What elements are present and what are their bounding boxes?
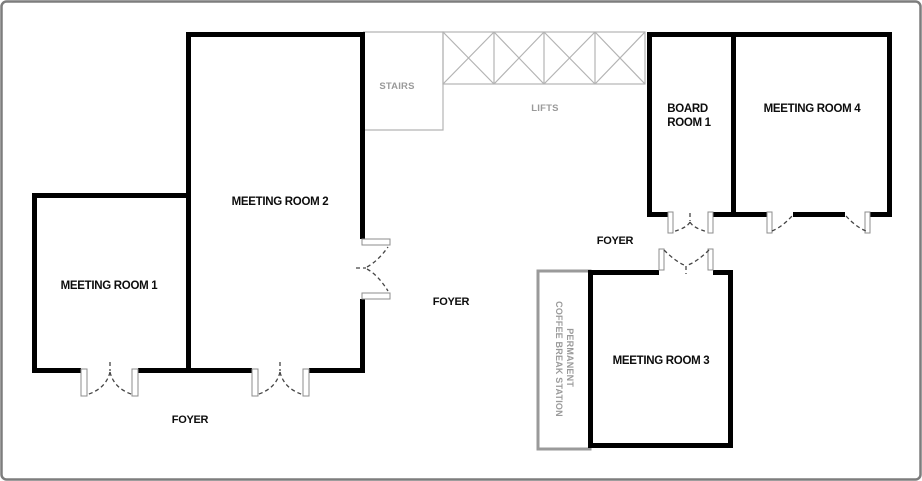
wall-br1-bottom-seg1 <box>647 212 668 217</box>
jamb-mr2-bottom-right <box>303 369 309 396</box>
jamb-mr4-door1 <box>767 212 772 233</box>
jamb-mr1-right <box>132 369 138 396</box>
wall-mr2-left <box>186 32 191 373</box>
meeting-room-4-door2-icon <box>846 216 866 231</box>
lifts-dividers <box>494 32 595 84</box>
stairs-label: STAIRS <box>379 81 414 92</box>
wall-mr4-right <box>887 32 892 217</box>
foyer-lower-left-label: FOYER <box>172 414 209 426</box>
foyer-upper-right-label: FOYER <box>597 235 634 247</box>
wall-mr2-top <box>186 32 365 37</box>
wall-bottom-seg2 <box>138 368 252 373</box>
wall-mr3-top-seg1 <box>588 270 659 275</box>
meeting-room-3-door-icon <box>664 250 709 274</box>
foyer-center-label: FOYER <box>433 296 470 308</box>
wall-mr4-bottom-seg2 <box>870 212 892 217</box>
wall-mr2-right-lower <box>360 299 365 373</box>
meeting-room-4-label: MEETING ROOM 4 <box>764 103 862 115</box>
room-areas <box>34 34 889 446</box>
jamb-mr1-left <box>81 369 87 396</box>
meeting-room-2-label: MEETING ROOM 2 <box>232 196 329 208</box>
wall-mr1-top <box>32 193 186 198</box>
wall-br1-mr4-top <box>647 32 892 37</box>
meeting-room-3-label: MEETING ROOM 3 <box>613 355 710 367</box>
wall-mr3-left <box>588 270 593 448</box>
jamb-mr4-door2 <box>865 212 870 233</box>
jamb-mr2-bottom-left <box>252 369 258 396</box>
meeting-room-4-area <box>735 34 889 215</box>
jamb-br1-right <box>708 212 713 233</box>
wall-bottom-seg3 <box>309 368 365 373</box>
board-room-1-door-icon <box>672 213 708 232</box>
lifts-area <box>443 32 645 84</box>
wall-mr3-right <box>728 270 733 448</box>
meeting-room-4-door1-icon <box>772 216 792 231</box>
jamb-mr2-right-lower <box>362 293 390 299</box>
wall-mr4-bottom-seg1 <box>793 212 845 217</box>
wall-mr2-right-upper <box>360 32 365 239</box>
jamb-mr3-left <box>659 249 664 270</box>
jamb-mr2-right-upper <box>362 239 390 245</box>
floor-plan: MEETING ROOM 1 MEETING ROOM 2 BOARD ROOM… <box>0 0 922 481</box>
wall-br1-mr4-divider <box>731 32 736 217</box>
jamb-mr3-right <box>708 249 713 270</box>
wall-br1-bottom-seg2 <box>713 212 767 217</box>
wall-mr1-left <box>32 193 37 373</box>
lifts-label: LIFTS <box>531 103 558 114</box>
jamb-br1-left <box>668 212 673 233</box>
wall-mr3-bottom <box>588 443 733 448</box>
wall-br1-left <box>647 32 652 217</box>
wall-bottom-seg1 <box>32 368 81 373</box>
meeting-room-1-label: MEETING ROOM 1 <box>61 280 159 292</box>
